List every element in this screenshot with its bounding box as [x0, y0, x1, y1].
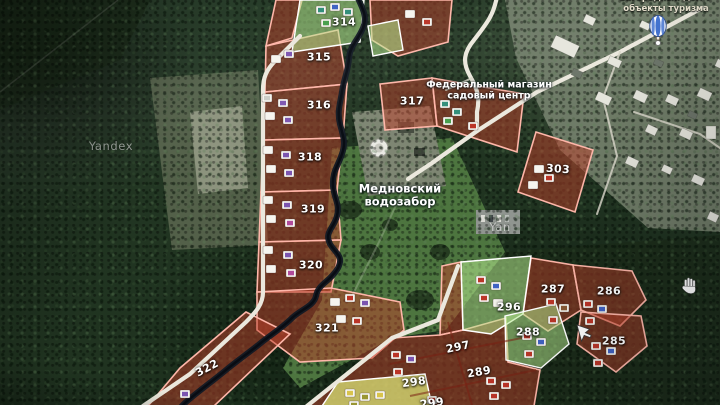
house-icon [606, 347, 616, 355]
house-icon [283, 116, 293, 124]
parcel-number-317: 317 [400, 95, 424, 108]
parcel-number-287: 287 [541, 283, 565, 296]
house-icon [266, 165, 276, 173]
hot-air-balloon-icon[interactable] [650, 16, 666, 46]
village-lane [597, 52, 620, 214]
parcel-number-303: 303 [545, 162, 570, 177]
parcel-number-316: 316 [307, 99, 331, 112]
house-icon [591, 342, 601, 350]
house-icon [476, 276, 486, 284]
house-icon [593, 359, 603, 367]
parcel-area-316[interactable] [263, 84, 347, 140]
house-icon [406, 355, 416, 363]
parcel-area[interactable] [368, 20, 403, 56]
house-icon [278, 99, 288, 107]
house-icon [263, 146, 273, 154]
forest-trail [0, 0, 118, 92]
building-footprint [679, 128, 693, 140]
house-icon [536, 338, 546, 346]
parcel-number-288: 288 [516, 326, 540, 339]
house-icon [501, 381, 511, 389]
building-footprint [706, 126, 716, 139]
house-icon [479, 294, 489, 302]
building-footprint [665, 94, 679, 106]
house-icon [263, 196, 273, 204]
house-icon [282, 201, 292, 209]
parcel-number-321: 321 [315, 322, 339, 335]
parcel-area-297[interactable] [440, 262, 463, 335]
house-icon [266, 215, 276, 223]
house-icon [489, 392, 499, 400]
house-icon [284, 169, 294, 177]
house-icon [360, 299, 370, 307]
pan-hand-cursor [682, 278, 695, 294]
parcel-number-319: 319 [301, 203, 325, 216]
parcel-number-286: 286 [597, 285, 621, 298]
building-footprint [707, 211, 719, 222]
dirt-track [350, 179, 408, 300]
parcel-number-315: 315 [307, 51, 331, 64]
house-icon [443, 117, 453, 125]
building-footprint [639, 20, 651, 31]
house-icon [491, 282, 501, 290]
building-footprint [550, 35, 579, 58]
map-canvas[interactable]: Медновский водозабор Федеральный магазин… [0, 0, 720, 405]
building-footprint [687, 110, 698, 119]
parcel-number-320: 320 [299, 259, 323, 272]
building-footprint [633, 90, 649, 104]
house-icon [422, 18, 432, 26]
house-icon [349, 401, 359, 405]
house-icon [534, 165, 544, 173]
building-footprint [645, 124, 658, 136]
house-icon [321, 19, 331, 27]
house-icon [468, 122, 478, 130]
house-icon [285, 219, 295, 227]
house-icon [271, 55, 281, 63]
house-icon [391, 351, 401, 359]
house-icon [286, 269, 296, 277]
parcel-area-322[interactable] [148, 312, 290, 405]
house-icon [546, 298, 556, 306]
building-footprint [661, 164, 673, 175]
house-icon [360, 393, 370, 401]
house-icon [528, 181, 538, 189]
house-icon [585, 317, 595, 325]
house-icon [345, 389, 355, 397]
house-icon [583, 300, 593, 308]
house-icon [597, 305, 607, 313]
house-icon [452, 108, 462, 116]
house-icon [330, 3, 340, 11]
building-footprint [715, 59, 720, 70]
building-footprint [607, 56, 622, 69]
parcel-number-296: 296 [497, 301, 521, 314]
house-icon [283, 251, 293, 259]
house-icon [352, 317, 362, 325]
house-icon [345, 294, 355, 302]
house-icon [524, 350, 534, 358]
house-icon [330, 298, 340, 306]
house-icon [548, 316, 558, 324]
building-footprint [691, 174, 705, 186]
house-icon [265, 112, 275, 120]
parcel-number-285: 285 [602, 335, 626, 348]
building-footprint [595, 91, 612, 105]
house-icon [266, 265, 276, 273]
building-footprint [625, 156, 639, 168]
house-icon [405, 10, 415, 18]
house-icon [281, 151, 291, 159]
house-icon [263, 246, 273, 254]
house-icon [180, 390, 190, 398]
house-icon [559, 304, 569, 312]
building-footprint [583, 14, 596, 26]
house-icon [375, 391, 385, 399]
building-footprint [697, 88, 713, 102]
house-icon [316, 6, 326, 14]
house-icon [486, 377, 496, 385]
parcel-number-318: 318 [298, 151, 322, 164]
house-icon [262, 94, 272, 102]
house-icon [393, 368, 403, 376]
house-icon [440, 100, 450, 108]
parcel-number-314: 314 [332, 16, 356, 29]
building-footprint [653, 58, 664, 67]
house-icon [284, 50, 294, 58]
